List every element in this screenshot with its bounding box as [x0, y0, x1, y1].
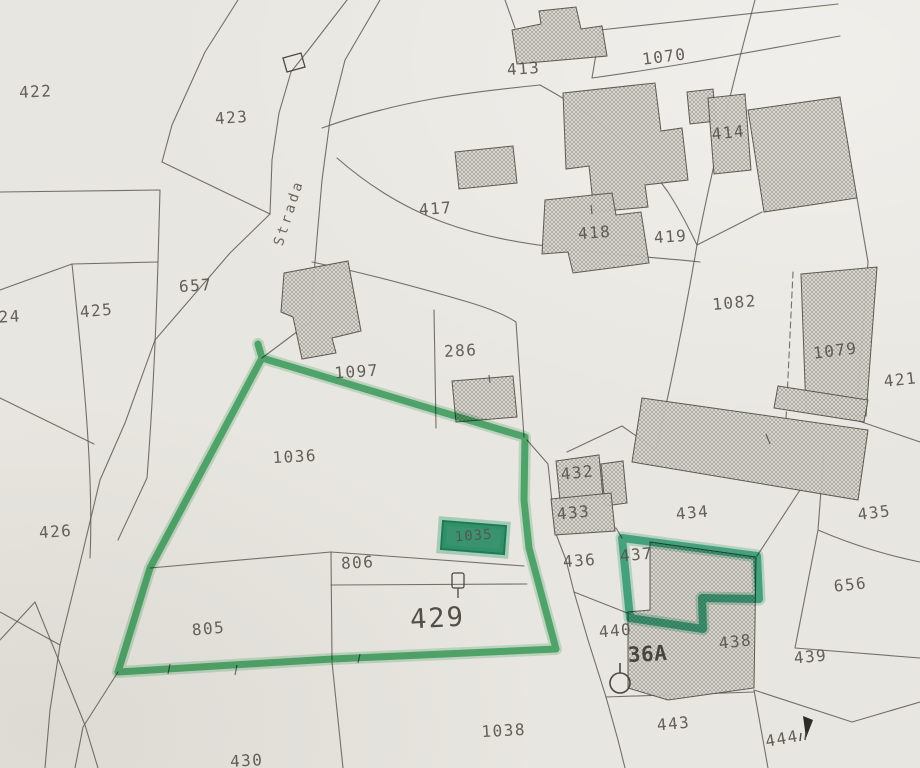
parcel-boundary	[0, 262, 158, 290]
parcel-label-418: 418	[577, 222, 612, 243]
parcel-label-433: 433	[556, 502, 591, 524]
parcel-label-429: 429	[409, 602, 465, 636]
parcel-label-36A: 36A	[627, 641, 668, 667]
double-tick	[800, 732, 806, 741]
parcel-label-426: 426	[38, 521, 73, 542]
parcel-label-435: 435	[857, 501, 892, 524]
parcel-boundary	[162, 162, 270, 214]
building-footprint	[512, 7, 607, 64]
parcel-label-656: 656	[833, 573, 868, 595]
parcel-label-1097: 1097	[334, 360, 380, 382]
parcel-label-1082: 1082	[712, 291, 758, 314]
parcel-boundary	[757, 490, 800, 556]
parcel-boundary	[0, 398, 94, 645]
parcel-label-425: 425	[79, 300, 114, 322]
parcel-label-440: 440	[598, 620, 633, 642]
buildings-hatched	[281, 7, 877, 700]
parcel-label-413: 413	[506, 58, 541, 79]
parcel-label-417: 417	[418, 198, 453, 219]
parcel-label-436: 436	[562, 550, 597, 571]
parcel-label-1036: 1036	[272, 446, 317, 467]
parcel-label-24: 24	[0, 306, 21, 326]
parcel-label-439: 439	[793, 646, 828, 668]
parcel-label-414: 414	[711, 121, 746, 143]
parcel-label-657: 657	[178, 275, 213, 296]
parcel-boundary	[45, 214, 270, 768]
parcel-label-422: 422	[19, 81, 53, 102]
parcel-label-421: 421	[883, 368, 918, 390]
parcel-label-443: 443	[656, 713, 691, 735]
hut-outline	[283, 53, 305, 72]
road-label: Strada	[271, 178, 307, 248]
gate-symbol	[452, 573, 464, 598]
parcel-boundary	[0, 190, 160, 262]
parcel-label-1038: 1038	[481, 720, 526, 741]
parcel-boundary	[270, 0, 347, 214]
parcel-boundary	[0, 602, 118, 768]
cadastral-map: 4224232442565742641310704144174184191082…	[0, 0, 920, 768]
parcel-label-806: 806	[341, 552, 375, 573]
benchmark-circle	[610, 663, 630, 693]
parcel-boundary	[592, 4, 840, 78]
parcel-label-437: 437	[619, 544, 654, 566]
parcel-label-1070: 1070	[641, 44, 688, 68]
parcel-boundary	[118, 262, 158, 540]
parcel-label-805: 805	[191, 618, 226, 640]
parcel-boundary	[150, 552, 527, 585]
parcel-label-438: 438	[718, 630, 753, 652]
parcel-label-419: 419	[653, 226, 688, 247]
parcel-label-432: 432	[560, 461, 595, 483]
parcel-label-1035: 1035	[454, 527, 493, 546]
parcel-boundary	[162, 0, 238, 162]
building-footprint	[455, 146, 517, 189]
map-canvas: 4224232442565742641310704144174184191082…	[0, 0, 920, 768]
parcel-label-430: 430	[230, 750, 264, 768]
building-footprint	[563, 83, 688, 212]
parcel-label-286: 286	[444, 340, 478, 361]
parcel-label-434: 434	[675, 502, 710, 524]
flag-marker	[803, 716, 813, 738]
parcel-label-444: 444	[764, 726, 800, 751]
parcel-label-423: 423	[214, 107, 249, 128]
building-footprint	[281, 261, 361, 359]
building-footprint	[748, 97, 857, 212]
